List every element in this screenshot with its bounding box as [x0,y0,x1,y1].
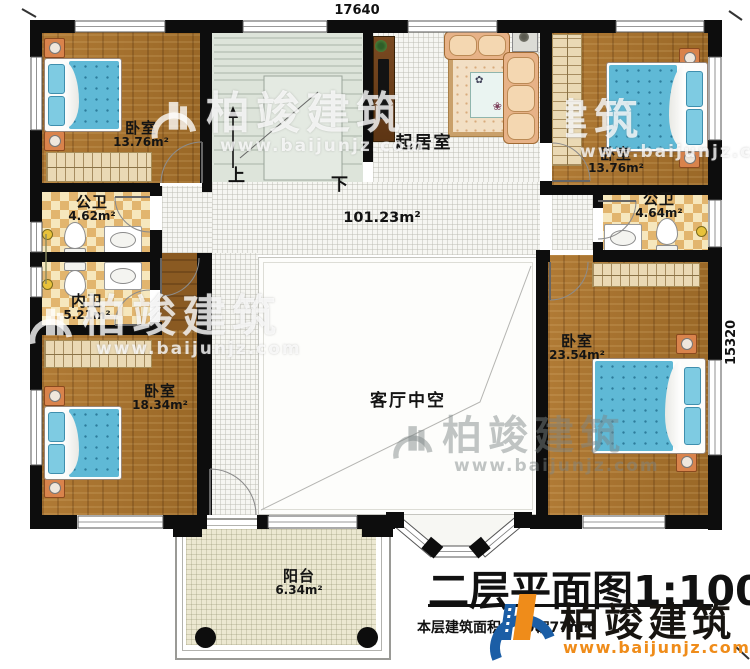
nightstand [44,386,65,406]
bed-tl [44,58,122,132]
dimension-top: 17640 [334,3,379,18]
stairwell-floor [212,32,363,182]
stair-down-label: 下 [331,170,348,195]
bedroom-bl-corridor [160,253,197,333]
nightstand [44,131,65,151]
closet-tl [46,152,152,182]
room-label-bedroom-tl: 卧室13.76m² [113,120,169,149]
bay-window [386,512,532,559]
company-logo-url: www.baijunjz.com [563,638,750,657]
plant-icon [375,40,387,52]
corner-table [512,25,538,52]
bath-hall-left-floor [162,186,212,253]
tv-cabinet [373,36,395,142]
closet-bl [44,340,152,368]
dimension-right: 15320 [724,320,739,365]
nightstand [676,334,697,354]
bed-br [592,358,706,454]
room-label-bedroom-br: 卧室23.54m² [549,333,605,362]
room-label-bath-right: 公卫4.64m² [635,191,682,220]
living-area-value: 101.23m² [343,210,420,226]
sink [104,226,142,254]
nightstand [44,478,65,498]
closet-br [592,263,700,287]
room-label-void: 客厅中空 [370,386,446,411]
nightstand [676,452,697,472]
bed-bl [44,406,122,480]
balcony-column-right [357,627,378,648]
sink [604,224,642,252]
room-label-bath-inner: 内卫5.21m² [63,293,110,322]
room-label-balcony: 阳台6.34m² [275,568,322,597]
room-label-bath-left: 公卫4.62m² [68,194,115,223]
watermark-top-right: 柏竣建筑 www.baijunjz.com [566,98,750,176]
nightstand [44,38,65,58]
sofa-top [444,31,510,60]
shower-knob [42,279,53,290]
shower-knob [42,229,53,240]
balcony-column-left [195,627,216,648]
company-logo-icon [474,590,560,668]
room-label-living: 起居室 [396,128,453,153]
room-label-bedroom-bl: 卧室18.34m² [132,383,188,412]
stair-up-label: 上 [228,161,245,186]
floor-plan: 17640 15320 卧室13.76m² 起居室 卧室13.76m² 公卫4.… [0,0,750,669]
sofa-right [503,52,539,144]
balcony-hall-floor [205,253,258,515]
bath-hall-right-floor [552,195,593,250]
sink [104,262,142,290]
shower-knob [696,226,707,237]
